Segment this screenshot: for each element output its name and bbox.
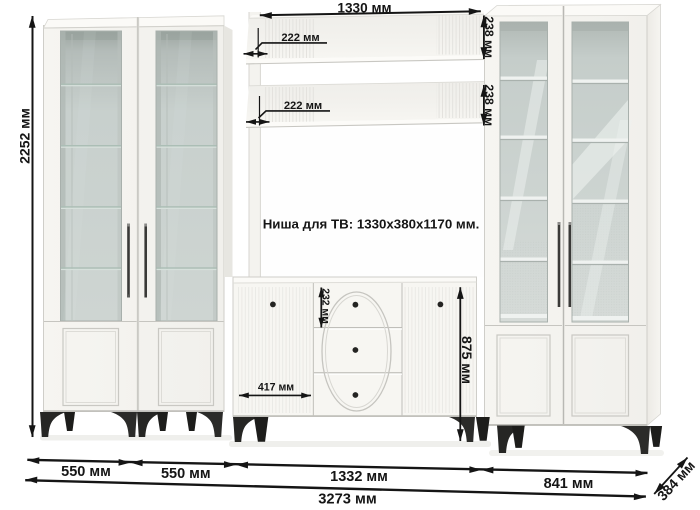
svg-text:1330 мм: 1330 мм [337,1,391,16]
svg-text:2252 мм: 2252 мм [16,108,32,164]
svg-text:417 мм: 417 мм [258,382,294,394]
svg-text:550 мм: 550 мм [61,464,111,480]
svg-text:238 мм: 238 мм [482,16,496,58]
svg-text:841 мм: 841 мм [544,476,594,492]
svg-text:550 мм: 550 мм [161,466,211,482]
svg-text:875 мм: 875 мм [459,336,475,384]
svg-text:222 мм: 222 мм [284,100,322,112]
svg-text:Ниша для ТВ: 1330x380x1170 мм.: Ниша для ТВ: 1330x380x1170 мм. [263,217,480,232]
svg-text:3273 мм: 3273 мм [318,492,377,508]
svg-text:222 мм: 222 мм [281,32,319,44]
svg-text:238 мм: 238 мм [482,84,496,126]
svg-text:1332 мм: 1332 мм [330,469,388,485]
svg-text:232 мм: 232 мм [320,288,331,324]
